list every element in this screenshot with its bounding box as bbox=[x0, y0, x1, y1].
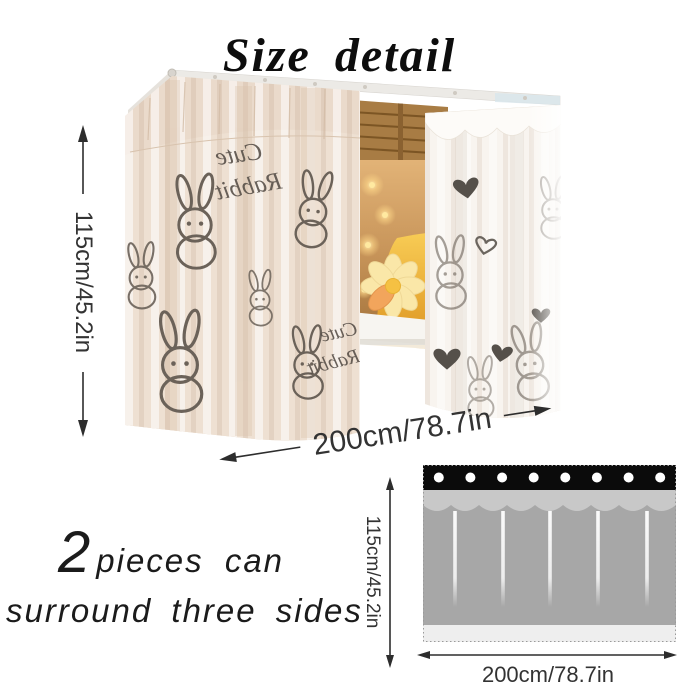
arrowhead-down bbox=[78, 420, 88, 437]
arrowhead-down bbox=[386, 655, 394, 668]
hem-band bbox=[423, 625, 676, 642]
caption-line1: 2pieces can bbox=[58, 524, 366, 582]
left-curtain: Cute Rabbit Cute Rabbit bbox=[125, 70, 363, 445]
diagram-panel bbox=[423, 465, 676, 642]
photo-height-label: 115cm/45.2in bbox=[70, 211, 97, 353]
arrowhead-right bbox=[664, 651, 677, 659]
caption-line2: surround three sides bbox=[6, 592, 366, 630]
corner-knob bbox=[168, 69, 176, 77]
flower-pillow bbox=[361, 254, 425, 318]
caption: 2pieces can surround three sides bbox=[6, 524, 366, 630]
photo-height-dimension: 115cm/45.2in bbox=[56, 122, 108, 440]
diagram-width-label: 200cm/78.7in bbox=[482, 662, 614, 685]
diagram-width-dimension: 200cm/78.7in bbox=[415, 646, 679, 685]
grommet-strip bbox=[423, 465, 676, 490]
diagram-height-dimension: 115cm/45.2in bbox=[355, 475, 403, 670]
size-detail-page: Size detail bbox=[0, 0, 679, 685]
right-curtain bbox=[423, 100, 565, 423]
caption-line1-text: pieces can bbox=[96, 542, 284, 579]
caption-number: 2 bbox=[58, 520, 90, 585]
arrowhead-right bbox=[534, 403, 552, 415]
diagram-height-label: 115cm/45.2in bbox=[362, 516, 383, 629]
arrowhead-left bbox=[219, 452, 237, 464]
curtain-diagram: 115cm/45.2in 200cm/78.7in bbox=[355, 450, 679, 685]
